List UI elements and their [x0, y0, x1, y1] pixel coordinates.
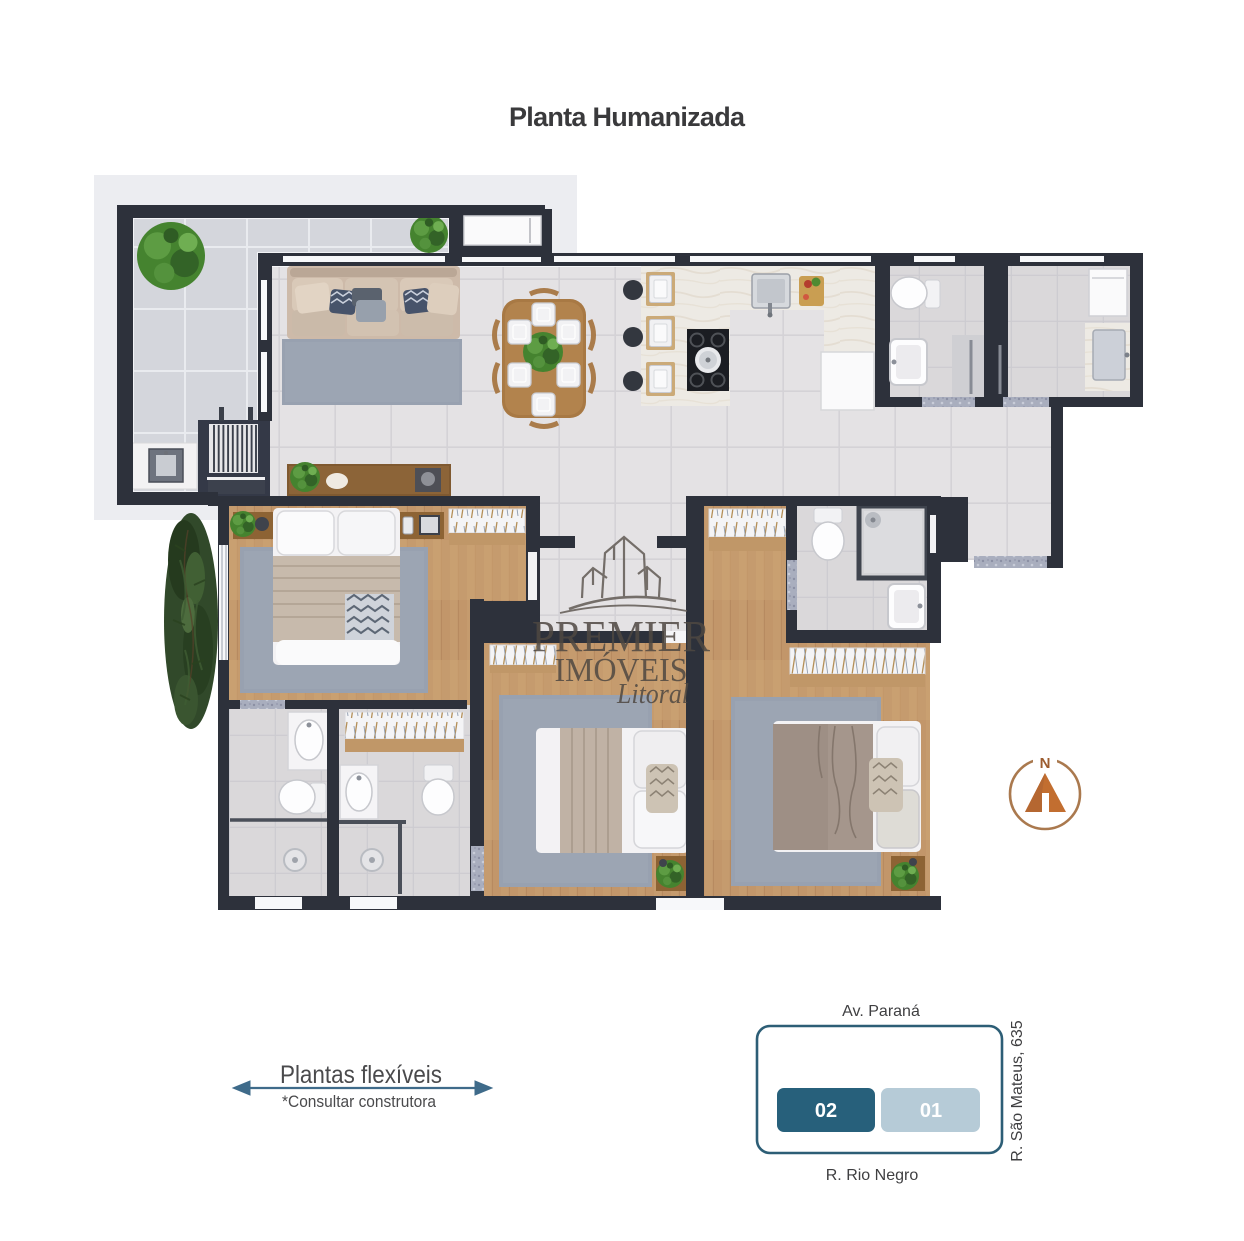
svg-text:N: N [1040, 755, 1051, 772]
svg-text:01: 01 [920, 1100, 942, 1122]
svg-text:Plantas flexíveis: Plantas flexíveis [280, 1061, 442, 1089]
svg-text:Av. Paraná: Av. Paraná [842, 1003, 920, 1020]
svg-text:Litoral: Litoral [616, 679, 689, 710]
svg-text:Planta Humanizada: Planta Humanizada [509, 102, 746, 132]
svg-text:R. São Mateus, 635: R. São Mateus, 635 [1009, 1020, 1026, 1162]
svg-text:02: 02 [815, 1100, 837, 1122]
svg-text:*Consultar construtora: *Consultar construtora [282, 1092, 436, 1111]
svg-text:R. Rio Negro: R. Rio Negro [826, 1167, 919, 1184]
